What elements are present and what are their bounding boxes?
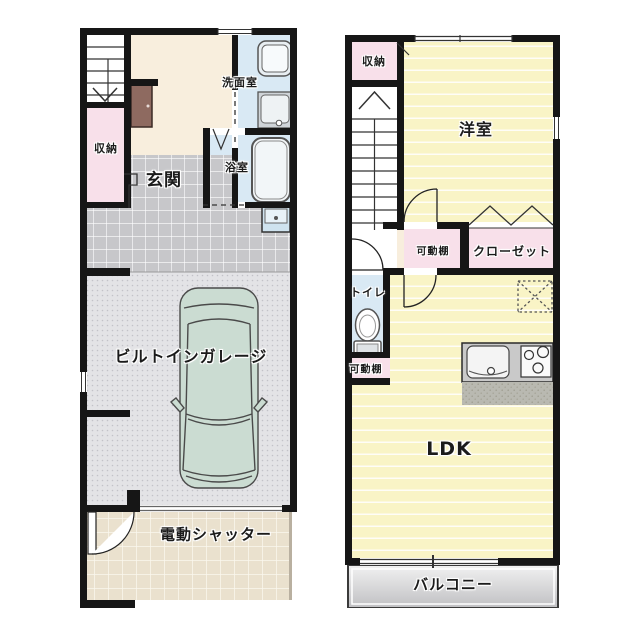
closet [469, 228, 553, 268]
kitchen-floor-mat [462, 382, 553, 405]
driveway-tile [87, 512, 292, 600]
balcony-area [348, 565, 558, 608]
floor2-plan [345, 35, 560, 608]
kitchen-sink-icon [467, 346, 509, 378]
kitchen-counter [462, 343, 553, 405]
movable-shelf-upper [404, 228, 460, 268]
shoe-cabinet-icon [131, 85, 152, 127]
gas-stove-icon [521, 346, 551, 377]
floor1-plan [80, 28, 297, 608]
slop-sink-icon [262, 206, 290, 232]
vanity-sink-icon [258, 92, 292, 128]
western-room [397, 42, 553, 222]
washing-machine-icon [258, 41, 292, 76]
entrance-door-leaf [88, 512, 96, 554]
entrance-tile [131, 155, 232, 208]
floorplan-canvas: 収納 玄関 洗面室 浴室 ビルトインガレージ 電動シャッター 収納 洋室 可動棚… [0, 0, 640, 640]
storage-room-2f [352, 42, 397, 80]
toilet-icon [354, 309, 381, 356]
bathtub-icon [252, 138, 290, 202]
car-icon [171, 288, 267, 488]
ldk-room [390, 275, 553, 558]
staircase-area [87, 35, 124, 102]
storage-room [87, 108, 124, 202]
movable-shelf-lower [352, 358, 390, 378]
